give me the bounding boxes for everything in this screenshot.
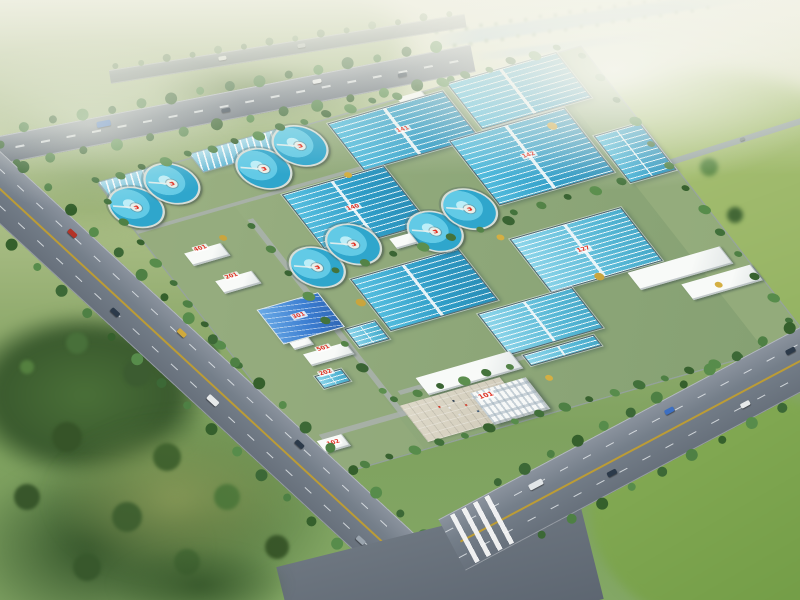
van [206, 394, 220, 407]
car [398, 72, 408, 78]
forest-canopy [20, 360, 34, 374]
car [218, 56, 227, 61]
basin-label: 141 [394, 125, 412, 135]
car [785, 346, 796, 355]
admin-label: 101 [476, 390, 497, 401]
car [67, 228, 78, 238]
car [176, 328, 187, 338]
car [664, 406, 675, 415]
car [740, 137, 746, 141]
car [221, 107, 231, 113]
bus [96, 120, 111, 129]
tree-row [112, 63, 119, 70]
car [312, 78, 322, 84]
gate-label: 102 [324, 438, 342, 448]
basin-label: 127 [574, 244, 592, 254]
aerial-rendering-water-treatment-plant: 141 140 142 127 401 201 [0, 0, 800, 600]
bus [528, 478, 544, 490]
basin-label: 142 [520, 150, 538, 160]
car [297, 43, 306, 48]
building-label: 301 [290, 311, 308, 321]
car [740, 400, 751, 409]
basin-label: 140 [344, 203, 362, 213]
tree-row [492, 477, 503, 488]
